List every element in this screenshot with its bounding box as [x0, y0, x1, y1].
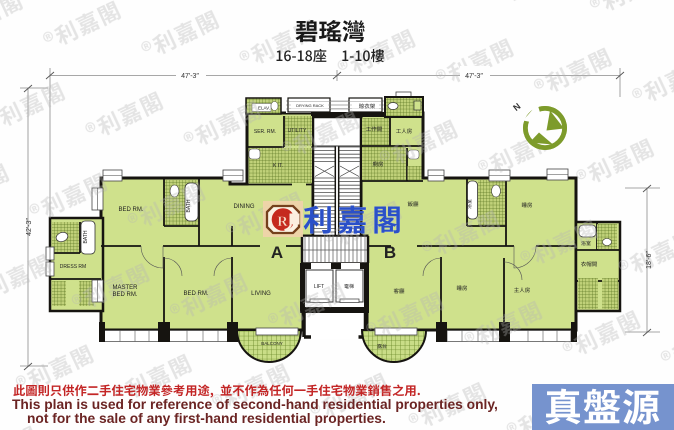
svg-text:DRESS RM: DRESS RM: [60, 264, 86, 270]
svg-text:BATH: BATH: [186, 199, 192, 212]
svg-text:R: R: [277, 214, 288, 230]
svg-text:DINING: DINING: [234, 204, 255, 210]
svg-text:DRYING RACK: DRYING RACK: [296, 103, 324, 108]
svg-text:18′-6″: 18′-6″: [646, 251, 653, 269]
svg-text:not for the sale of any first-: not for the sale of any first-hand resid…: [27, 411, 386, 426]
svg-text:A: A: [271, 243, 283, 262]
svg-text:BED RM.: BED RM.: [112, 292, 137, 298]
svg-text:BED RM.: BED RM.: [118, 207, 143, 213]
svg-text:42′-3″: 42′-3″: [26, 218, 33, 236]
svg-text:BATH: BATH: [83, 230, 89, 243]
svg-text:LIVING: LIVING: [251, 291, 271, 297]
svg-text:This plan is used for referenc: This plan is used for reference of secon…: [12, 397, 498, 412]
svg-text:ELAV.: ELAV.: [258, 106, 270, 111]
svg-text:47′-3″: 47′-3″: [181, 73, 199, 80]
svg-text:47′-3″: 47′-3″: [465, 73, 483, 80]
svg-text:K IT.: K IT.: [273, 163, 283, 169]
svg-text:LIFT: LIFT: [314, 284, 324, 290]
svg-text:UTILITY: UTILITY: [288, 128, 307, 134]
svg-text:B: B: [384, 243, 396, 262]
svg-text:BALCONY: BALCONY: [261, 341, 283, 346]
svg-text:BED RM.: BED RM.: [183, 291, 208, 297]
svg-text:MASTER: MASTER: [112, 285, 138, 291]
svg-text:SER. RM.: SER. RM.: [254, 129, 276, 135]
